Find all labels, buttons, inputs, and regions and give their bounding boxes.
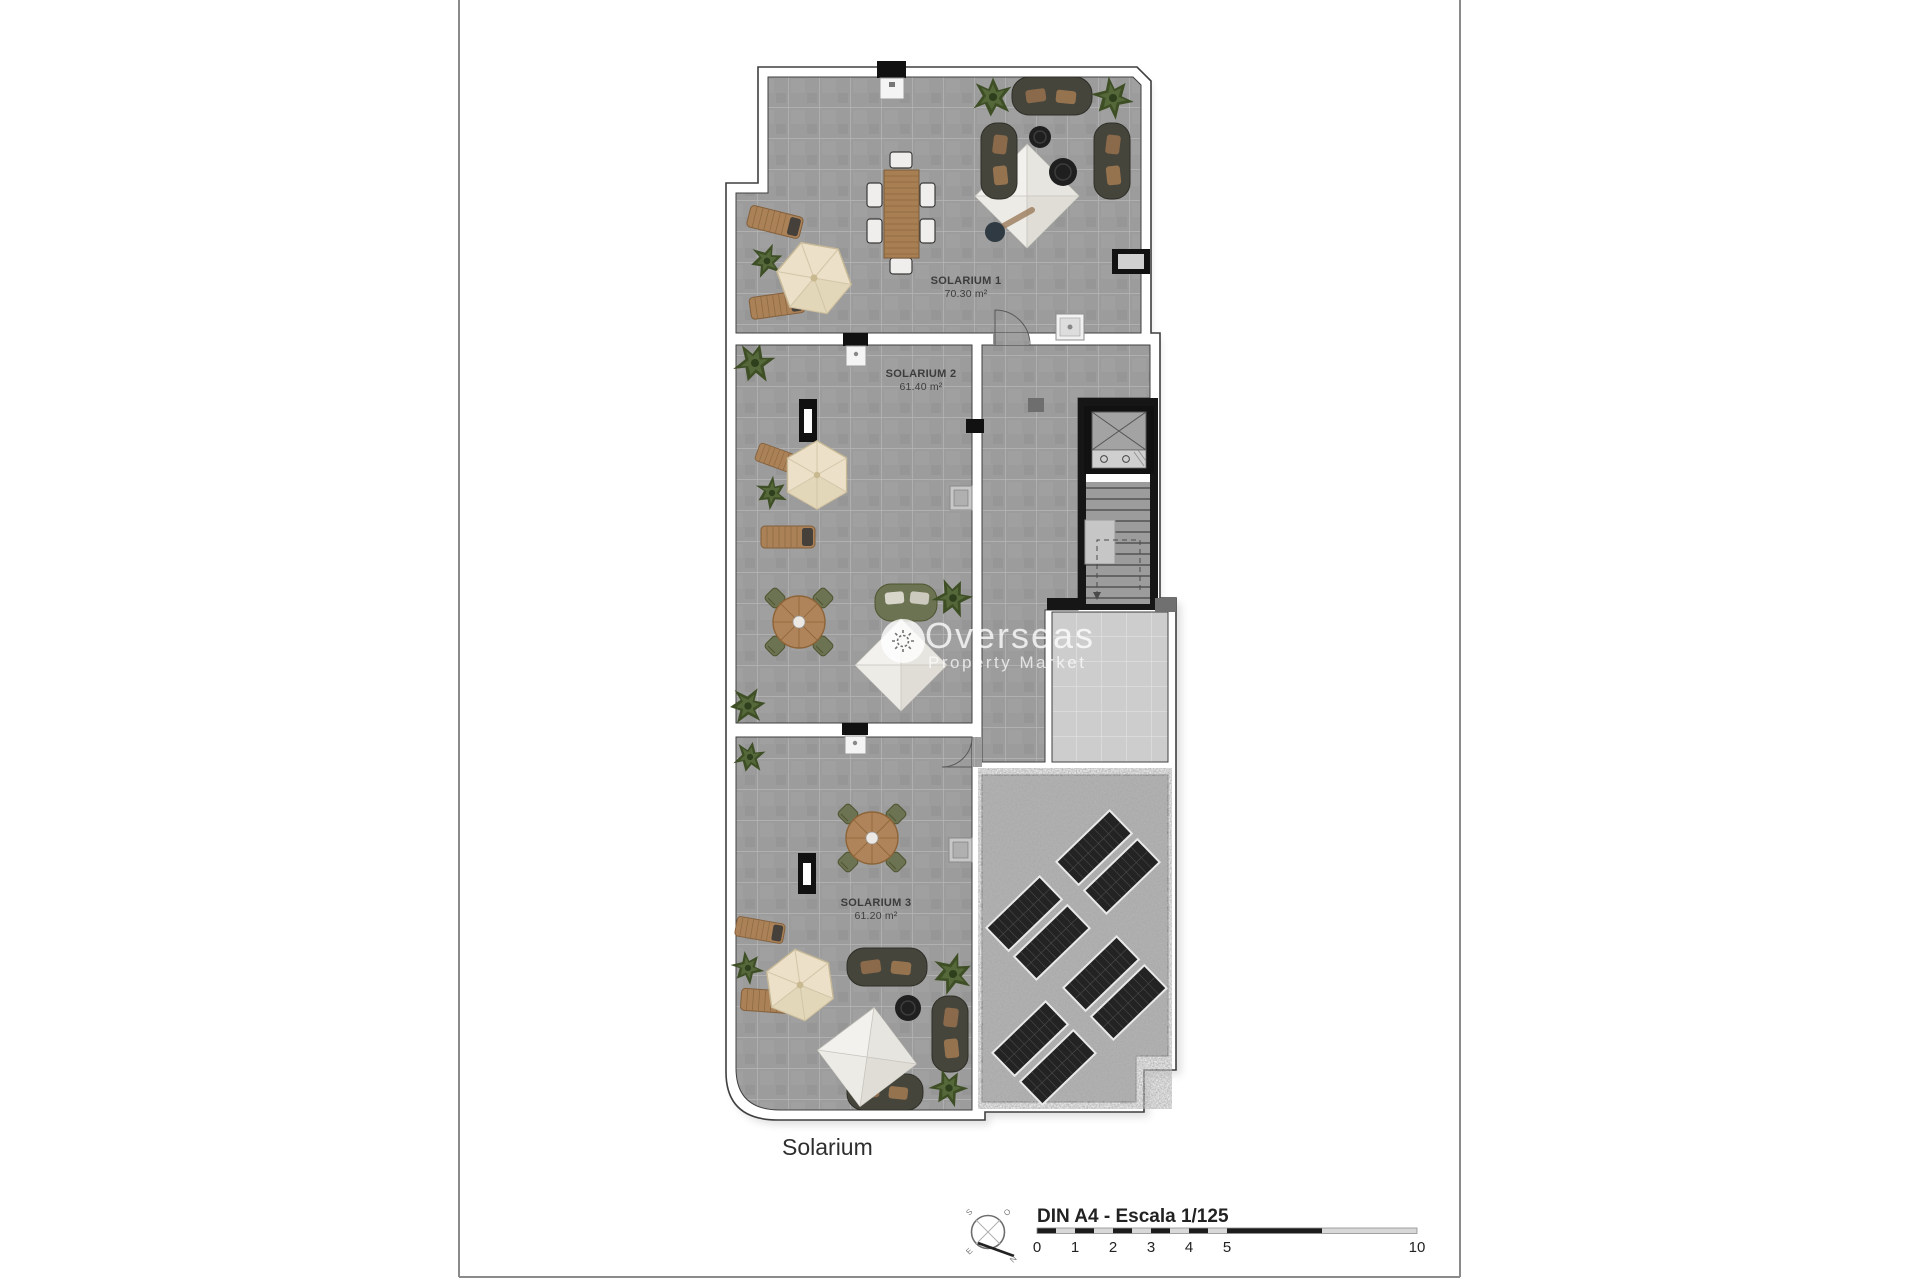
floor-plan-canvas: SOLARIUM 1 70.30 m² SOLARIUM 2 61.40 m² … [0,0,1920,1280]
round-table [764,587,835,658]
room-label-area: 61.40 m² [899,381,942,393]
svg-text:2: 2 [1109,1239,1117,1256]
sofa [1012,77,1092,115]
svg-text:S: S [964,1207,974,1217]
svg-text:1: 1 [1071,1239,1079,1256]
pouf [1049,158,1077,186]
svg-text:N: N [1008,1254,1019,1265]
sink-solarium-1 [1056,314,1084,340]
chimney-solarium-2 [799,399,817,442]
svg-text:10: 10 [1409,1239,1426,1256]
room-label-area: 61.20 m² [854,910,897,922]
compass-icon: S O E N [964,1207,1018,1265]
scale-numbers: 0 1 2 3 4 5 10 [1033,1239,1426,1256]
scale-title: DIN A4 - Escala 1/125 [1037,1206,1229,1227]
elevator [1084,406,1154,474]
svg-text:4: 4 [1185,1239,1193,1256]
pouf [1029,126,1051,148]
sofa [1094,123,1130,199]
svg-text:3: 3 [1147,1239,1155,1256]
sofa [847,948,927,986]
watermark-line1: Overseas [925,615,1095,656]
unit-solarium-2-wall [950,486,972,510]
svg-text:5: 5 [1223,1239,1231,1256]
stairs [1085,482,1150,604]
pouf [895,995,921,1021]
sofa [932,996,968,1072]
svg-text:0: 0 [1033,1239,1041,1256]
round-table [837,803,908,874]
watermark-logo [881,619,925,663]
sofa [981,123,1017,199]
sun-lounger [761,526,815,548]
vent-wall-2-3 [842,723,868,754]
scale-bar-segments [1037,1228,1417,1234]
room-label-name: SOLARIUM 1 [931,275,1002,287]
watermark-line2: Property Market [928,653,1086,672]
plan-caption: Solarium [782,1134,873,1160]
svg-text:E: E [964,1246,974,1256]
vent-wall-right-top [966,419,984,433]
room-label-name: SOLARIUM 2 [886,368,957,380]
pouf [985,222,1005,242]
unit-solarium-3-wall [949,838,972,862]
room-label-name: SOLARIUM 3 [841,897,912,909]
chimney-solarium-3 [798,853,816,894]
scale-bar: DIN A4 - Escala 1/125 0 1 2 3 4 5 10 [1033,1206,1426,1256]
vent-top-wall [877,61,906,99]
svg-text:O: O [1002,1207,1013,1218]
vent-right-wall [1112,249,1150,274]
room-label-area: 70.30 m² [944,288,987,300]
vent-wall-1-2 [843,333,868,366]
